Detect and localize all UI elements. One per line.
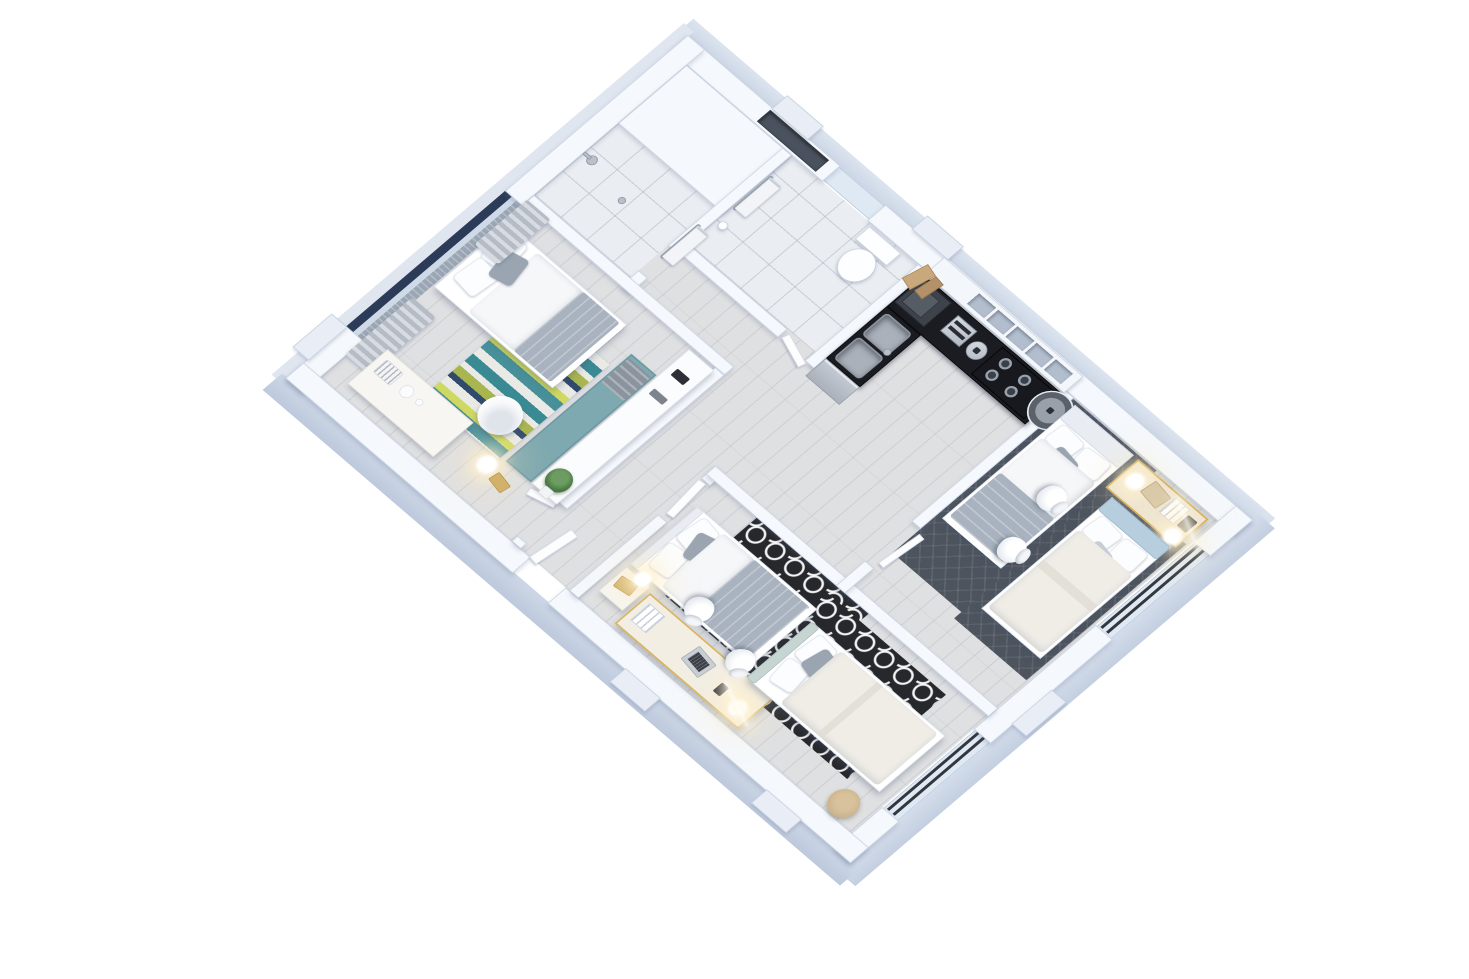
floorplan-render	[0, 0, 1469, 979]
apartment-plan	[285, 35, 1253, 863]
